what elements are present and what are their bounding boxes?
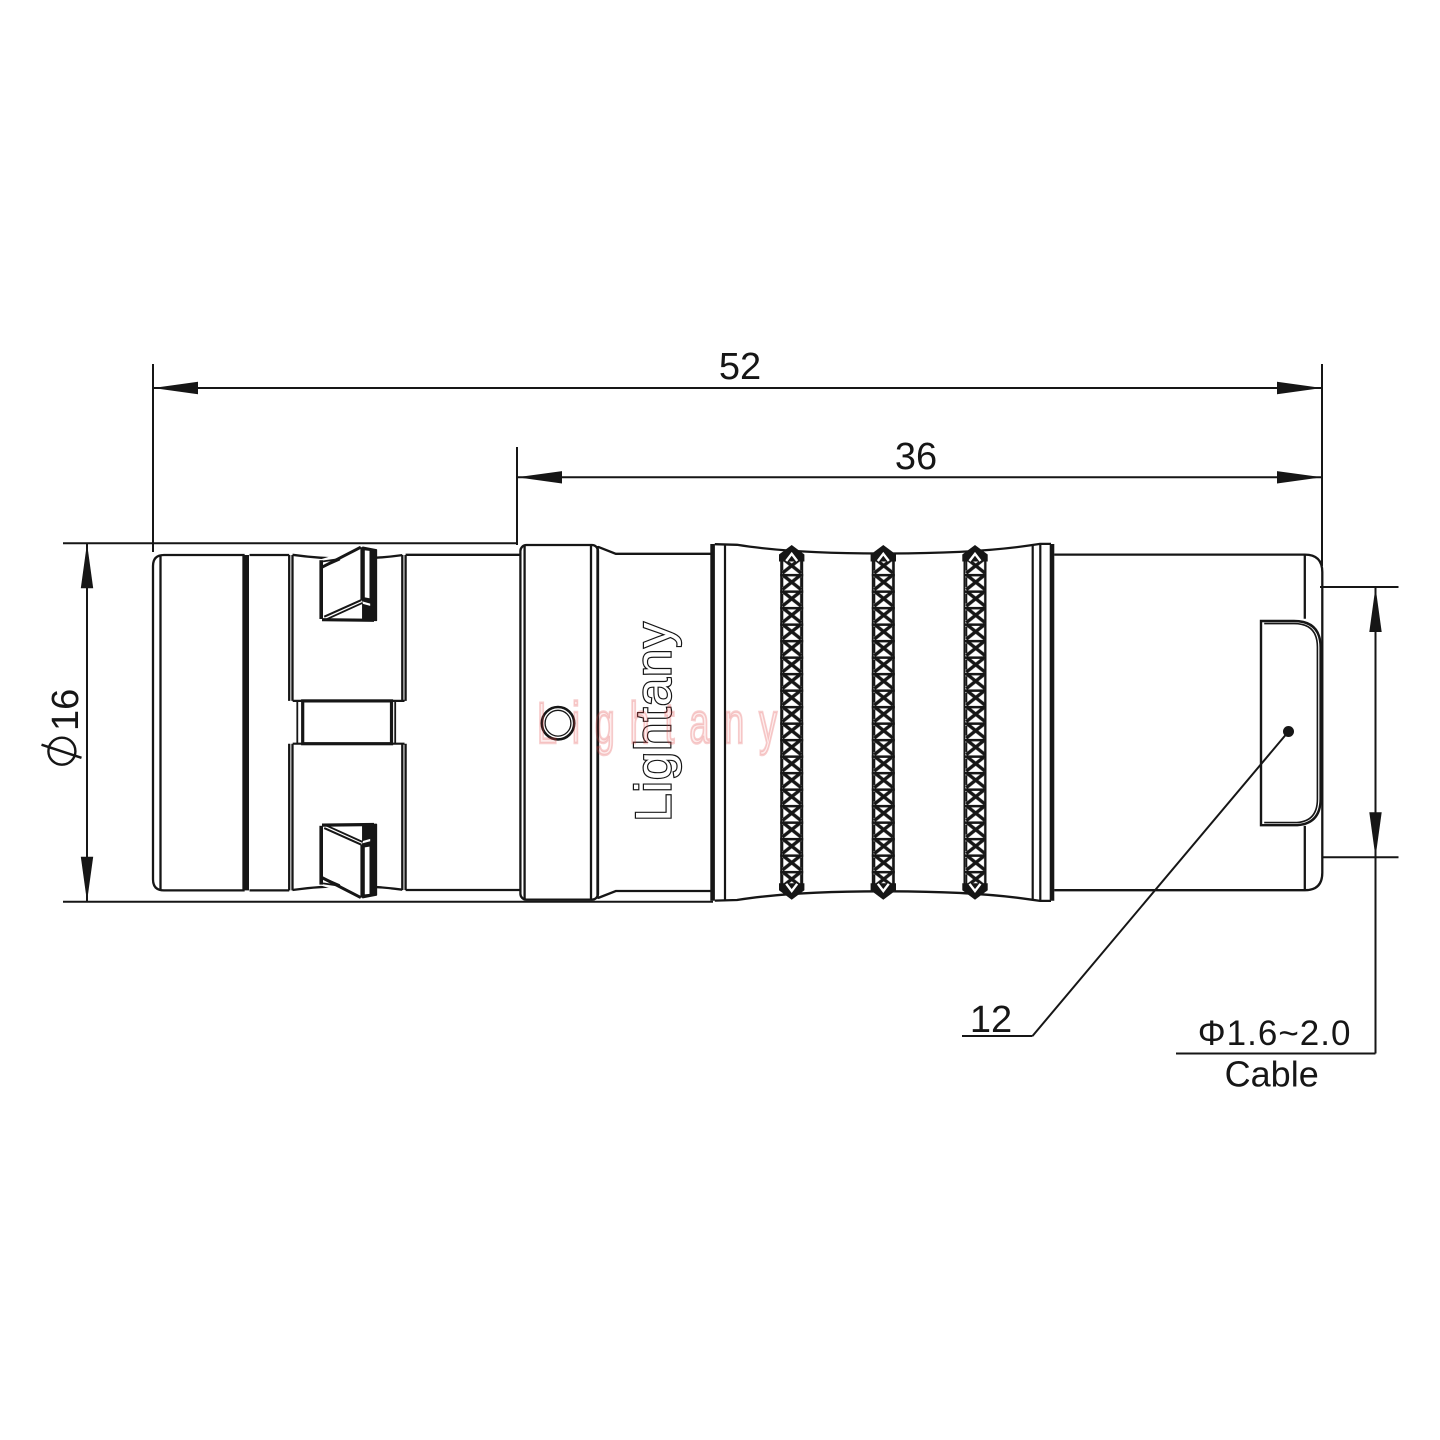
svg-text:Cable: Cable xyxy=(1225,1054,1319,1095)
svg-text:Φ1.6~2.0: Φ1.6~2.0 xyxy=(1198,1014,1352,1053)
svg-text:52: 52 xyxy=(719,346,761,388)
svg-text:36: 36 xyxy=(895,436,937,478)
svg-text:Lightany: Lightany xyxy=(537,691,792,756)
svg-text:12: 12 xyxy=(970,999,1012,1041)
svg-text:16: 16 xyxy=(45,689,87,731)
